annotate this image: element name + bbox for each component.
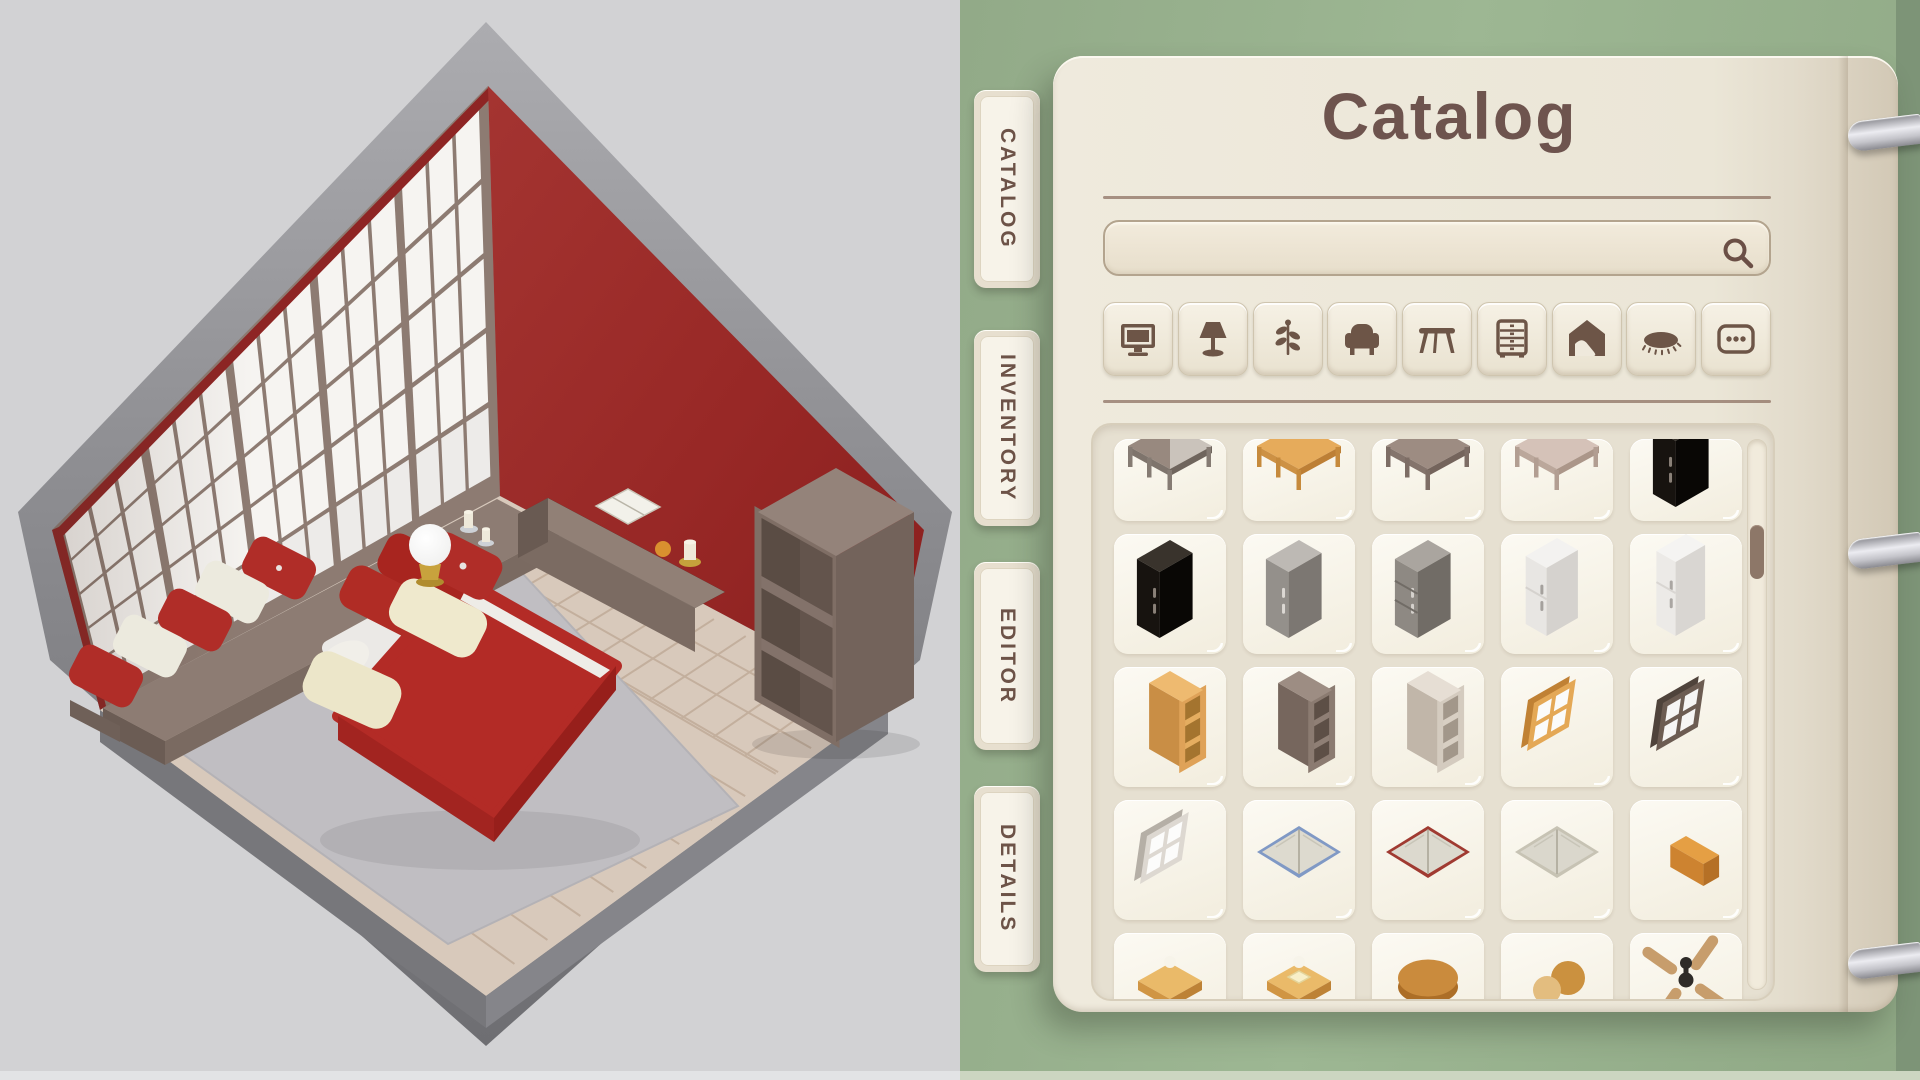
bottom-edge-left	[0, 1071, 960, 1080]
plant-icon	[1264, 315, 1312, 363]
catalog-item-wardrobe-black-peek[interactable]	[1630, 439, 1742, 521]
book-render	[1372, 800, 1484, 920]
window-render	[1114, 800, 1226, 920]
catalog-item-table-taupe[interactable]	[1372, 439, 1484, 521]
tab-face: DETAILS	[980, 792, 1034, 966]
fan-render	[1630, 933, 1742, 1001]
catalog-item-corner-desk-two-tone[interactable]	[1114, 439, 1226, 521]
catalog-item-ceiling-fan[interactable]	[1630, 933, 1742, 1001]
category-storage[interactable]	[1477, 302, 1547, 376]
catalog-item-wardrobe-gray[interactable]	[1243, 534, 1355, 654]
category-plants[interactable]	[1253, 302, 1323, 376]
category-rugs[interactable]	[1626, 302, 1696, 376]
spine-shadow	[1838, 56, 1848, 1012]
isometric-room	[0, 0, 960, 1080]
game-screen: CATALOGINVENTORYEDITORDETAILS Catalog	[0, 0, 1920, 1080]
scrollbar-track[interactable]	[1747, 439, 1767, 990]
desk-render	[1114, 439, 1226, 521]
catalog-item-cabinet-gray-drawers[interactable]	[1372, 534, 1484, 654]
orange-fruit[interactable]	[655, 541, 671, 557]
catalog-item-toast-slice[interactable]	[1114, 933, 1226, 1001]
catalog-item-bookshelf-beige[interactable]	[1372, 667, 1484, 787]
catalog-panel-area: CATALOGINVENTORYEDITORDETAILS Catalog	[960, 0, 1920, 1080]
rug-icon	[1637, 315, 1685, 363]
catalog-item-bookshelf-light-wood[interactable]	[1114, 667, 1226, 787]
tab-label: EDITOR	[995, 608, 1019, 705]
catalog-item-wardrobe-black[interactable]	[1114, 534, 1226, 654]
catalog-item-open-book-blue-cover[interactable]	[1243, 800, 1355, 920]
bun-render	[1372, 933, 1484, 1001]
table-render	[1243, 439, 1355, 521]
tab-face: CATALOG	[980, 96, 1034, 282]
dots-icon	[1712, 315, 1760, 363]
item-grid[interactable]	[1091, 423, 1775, 1001]
book-render	[1501, 800, 1613, 920]
shelf-render	[1243, 667, 1355, 787]
catalog-item-toast-with-butter[interactable]	[1243, 933, 1355, 1001]
cookies-render	[1501, 933, 1613, 1001]
catalog-book: Catalog	[1053, 56, 1898, 1012]
title-underline	[1103, 196, 1771, 199]
wardrobe-render	[1630, 439, 1742, 521]
toast-render	[1243, 933, 1355, 1001]
shelf-render	[1372, 667, 1484, 787]
fridge-render	[1501, 534, 1613, 654]
tab-catalog[interactable]: CATALOG	[974, 90, 1040, 288]
catalog-item-bread-loaf[interactable]	[1630, 800, 1742, 920]
loaf-render	[1630, 800, 1742, 920]
scrollbar-thumb[interactable]	[1750, 525, 1764, 579]
table-icon	[1413, 315, 1461, 363]
window-render	[1501, 667, 1613, 787]
wardrobe-render	[1114, 534, 1226, 654]
tab-details[interactable]: DETAILS	[974, 786, 1040, 972]
catalog-item-window-white[interactable]	[1114, 800, 1226, 920]
fridge2-render	[1630, 534, 1742, 654]
tab-label: DETAILS	[995, 824, 1019, 933]
tab-label: CATALOG	[995, 128, 1019, 250]
tab-label: INVENTORY	[995, 354, 1019, 502]
catalog-item-refrigerator-white[interactable]	[1501, 534, 1613, 654]
category-wall-decor[interactable]	[1552, 302, 1622, 376]
category-tables[interactable]	[1402, 302, 1472, 376]
room-viewport	[0, 0, 960, 1080]
catalog-item-refrigerator-white-tall[interactable]	[1630, 534, 1742, 654]
window-render	[1630, 667, 1742, 787]
panel-title: Catalog	[1053, 78, 1846, 154]
catalog-item-bookshelf-taupe[interactable]	[1243, 667, 1355, 787]
toast-render	[1114, 933, 1226, 1001]
category-underline	[1103, 400, 1771, 403]
table-render	[1501, 439, 1613, 521]
catalog-item-window-dark-brown[interactable]	[1630, 667, 1742, 787]
book-render	[1243, 800, 1355, 920]
category-seating[interactable]	[1327, 302, 1397, 376]
catalog-item-table-pale-wood[interactable]	[1501, 439, 1613, 521]
search-input[interactable]	[1103, 220, 1771, 276]
catalog-item-window-light-wood[interactable]	[1501, 667, 1613, 787]
tab-inventory[interactable]: INVENTORY	[974, 330, 1040, 526]
catalog-item-table-light-wood[interactable]	[1243, 439, 1355, 521]
tab-face: INVENTORY	[980, 336, 1034, 520]
tv-icon	[1114, 315, 1162, 363]
armchair-icon	[1338, 315, 1386, 363]
dresser-icon	[1488, 315, 1536, 363]
catalog-item-pancake-bun[interactable]	[1372, 933, 1484, 1001]
cabinet-render	[1372, 534, 1484, 654]
category-bar	[1103, 302, 1771, 376]
bottom-edge-right	[960, 1071, 1920, 1080]
tab-editor[interactable]: EDITOR	[974, 562, 1040, 750]
house-icon	[1563, 315, 1611, 363]
tab-face: EDITOR	[980, 568, 1034, 744]
table-render	[1372, 439, 1484, 521]
lamp-icon	[1189, 315, 1237, 363]
catalog-item-open-book-plain[interactable]	[1501, 800, 1613, 920]
catalog-item-open-book-red-cover[interactable]	[1372, 800, 1484, 920]
category-lighting[interactable]	[1178, 302, 1248, 376]
category-more[interactable]	[1701, 302, 1771, 376]
catalog-item-cookies[interactable]	[1501, 933, 1613, 1001]
wardrobe-render	[1243, 534, 1355, 654]
category-screens[interactable]	[1103, 302, 1173, 376]
shelf-render	[1114, 667, 1226, 787]
